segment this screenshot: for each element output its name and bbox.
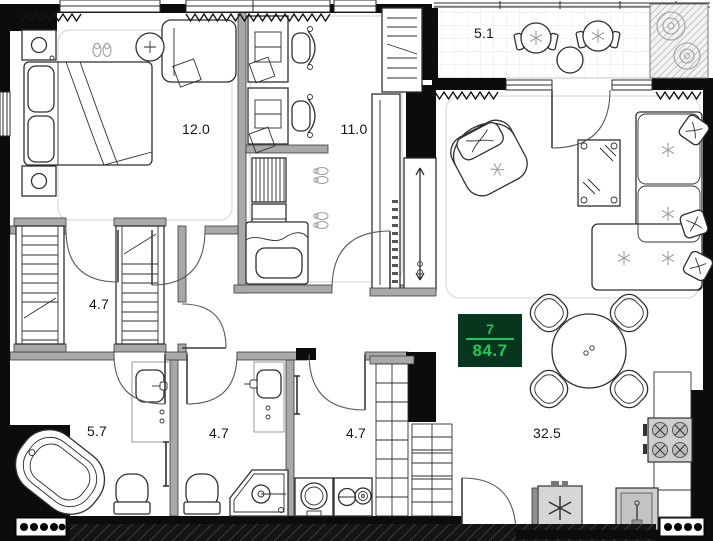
cabinet-icon bbox=[372, 94, 400, 290]
bed-icon bbox=[24, 62, 152, 165]
window bbox=[186, 0, 330, 12]
bed-icon bbox=[246, 222, 308, 284]
sink-icon bbox=[616, 488, 658, 530]
nightstand-icon bbox=[22, 166, 56, 196]
nightstand-icon bbox=[22, 30, 56, 60]
wardrobe-icon bbox=[382, 8, 422, 92]
total-area: 84.7 bbox=[472, 342, 507, 360]
badge-divider bbox=[466, 338, 514, 340]
toilet-icon bbox=[114, 474, 150, 514]
plants-icon bbox=[650, 4, 708, 78]
dryer-icon bbox=[334, 478, 372, 516]
unit-area-badge[interactable]: 7 84.7 bbox=[458, 314, 522, 367]
plan-drawing bbox=[0, 0, 713, 541]
window bbox=[506, 80, 552, 90]
balcony-table-icon bbox=[557, 47, 583, 73]
coffee-table-icon bbox=[578, 140, 620, 206]
fridge-icon bbox=[532, 481, 582, 530]
floor-plan: 12.0 11.0 5.1 4.7 5.7 4.7 4.7 32.5 7 84.… bbox=[0, 0, 713, 541]
window bbox=[612, 80, 652, 90]
kitchen-bottom-wall bbox=[516, 530, 660, 539]
vent-dots-icon bbox=[16, 518, 66, 536]
toilet-icon bbox=[184, 474, 220, 514]
window bbox=[0, 92, 10, 136]
stove-icon bbox=[643, 418, 692, 462]
vent-dots-icon bbox=[660, 518, 704, 536]
unit-number: 7 bbox=[486, 322, 494, 337]
washer-icon bbox=[295, 478, 333, 516]
window bbox=[60, 0, 160, 12]
window bbox=[334, 0, 376, 12]
